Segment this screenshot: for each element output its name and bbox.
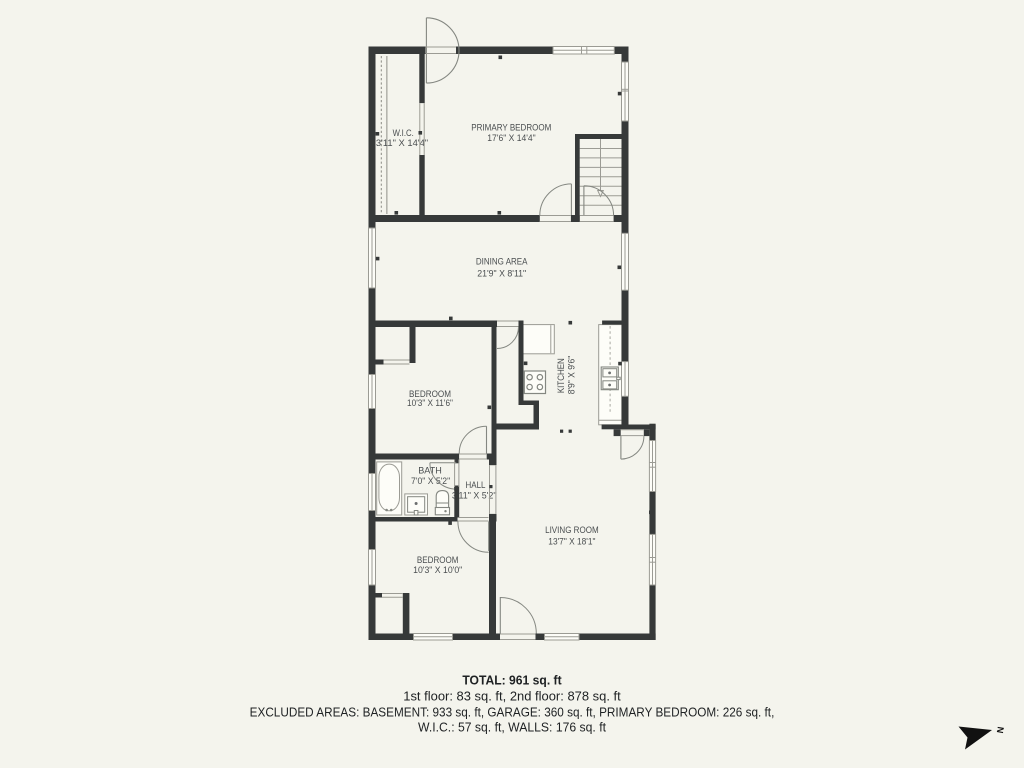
- svg-text:DINING AREA: DINING AREA: [476, 256, 528, 267]
- svg-text:1st floor: 83 sq. ft, 2nd floo: 1st floor: 83 sq. ft, 2nd floor: 878 sq.…: [403, 689, 621, 704]
- svg-text:10'3" X 11'6": 10'3" X 11'6": [407, 398, 453, 409]
- svg-text:TOTAL: 961 sq. ft: TOTAL: 961 sq. ft: [462, 672, 562, 687]
- svg-text:13'7" X 18'1": 13'7" X 18'1": [548, 537, 595, 548]
- svg-text:W.I.C.: 57 sq. ft, WALLS: 176: W.I.C.: 57 sq. ft, WALLS: 176 sq. ft: [418, 720, 606, 735]
- svg-text:W.I.C.: W.I.C.: [393, 128, 414, 139]
- svg-text:7'0" X 5'2": 7'0" X 5'2": [411, 476, 450, 487]
- svg-text:17'6" X 14'4": 17'6" X 14'4": [487, 133, 535, 144]
- svg-text:EXCLUDED AREAS: BASEMENT: 933: EXCLUDED AREAS: BASEMENT: 933 sq. ft, GA…: [250, 705, 775, 720]
- svg-text:10'3" X 10'0": 10'3" X 10'0": [413, 565, 462, 576]
- svg-text:21'9" X 8'11": 21'9" X 8'11": [477, 268, 526, 279]
- svg-text:LIVING ROOM: LIVING ROOM: [545, 525, 599, 536]
- svg-text:3'11" X 14'4": 3'11" X 14'4": [376, 138, 428, 149]
- svg-text:8'9" X 9'6": 8'9" X 9'6": [567, 356, 578, 395]
- svg-text:PRIMARY BEDROOM: PRIMARY BEDROOM: [471, 123, 551, 134]
- svg-text:KITCHEN: KITCHEN: [556, 358, 567, 393]
- svg-text:HALL: HALL: [466, 480, 486, 491]
